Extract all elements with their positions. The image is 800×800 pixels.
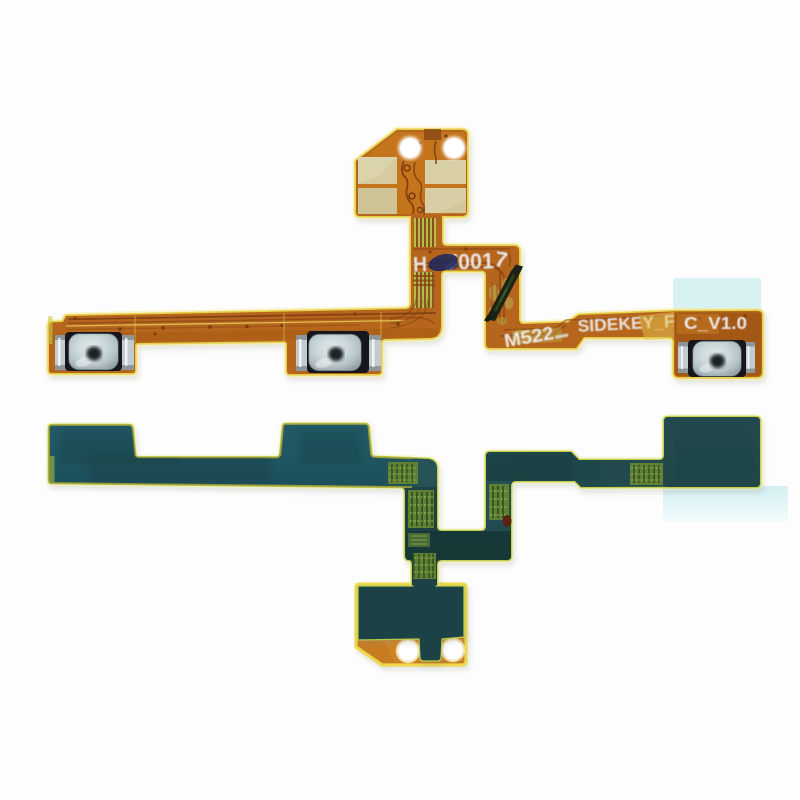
svg-text:C_V1.0: C_V1.0 — [684, 313, 747, 333]
svg-text:H: H — [413, 253, 428, 276]
